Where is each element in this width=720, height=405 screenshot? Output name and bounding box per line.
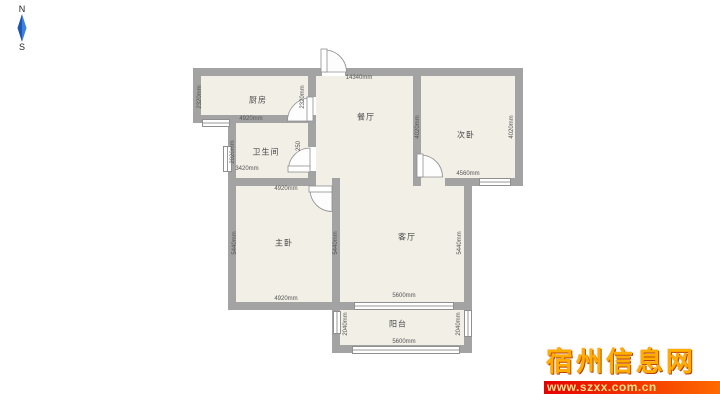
master-bedroom-door [309,186,332,212]
dim-living-right: 5440mm [457,231,463,254]
floorplan-canvas: N S [0,0,720,405]
room-label-bathroom: 卫生间 [253,147,280,158]
room-label-bedroom2: 次卧 [457,130,475,141]
dim-master-bottom: 4920mm [274,296,297,302]
bathroom-door [288,148,310,172]
doors-overlay [0,0,720,405]
room-label-master: 主卧 [275,238,293,249]
dim-master-left: 5440mm [232,231,238,254]
dim-balcony-right: 2040mm [456,312,462,335]
room-label-living: 客厅 [398,232,416,243]
dim-master-right: 5440mm [333,231,339,254]
floor-plan: 厨房 卫生间 餐厅 次卧 主卧 客厅 阳台 14340mm 4920mm 342… [0,0,720,405]
watermark: 宿州信息网 www.szxx.com.cn [544,346,720,396]
room-label-balcony: 阳台 [389,319,407,330]
dim-bath-right: 250 [296,141,302,151]
dim-bedroom2-right: 4020mm [509,115,515,138]
watermark-url: www.szxx.com.cn [544,381,720,394]
watermark-url-band: www.szxx.com.cn [544,381,720,394]
dim-bath-left: 2020mm [230,140,236,163]
dim-dining-bedroom2: 4020mm [415,115,421,138]
dim-master-top: 4920mm [274,186,297,192]
dim-total-top: 14340mm [346,75,373,81]
dim-bath-bottom: 3420mm [235,166,258,172]
room-label-kitchen: 厨房 [249,95,267,106]
dim-kitchen-left: 2320mm [197,85,203,108]
dim-kitchen-bottom: 4920mm [239,116,262,122]
dim-balcony-left: 2040mm [343,312,349,335]
dim-kitchen-right: 2320mm [300,85,306,108]
entrance-door [321,49,347,72]
watermark-site-name: 宿州信息网 [546,346,720,380]
dim-living-bottom: 5600mm [392,293,415,299]
dim-balcony-bottom: 5600mm [392,339,415,345]
room-label-dining: 餐厅 [357,112,375,123]
bedroom2-door [417,154,443,177]
dim-bedroom2-bottom: 4560mm [456,171,479,177]
